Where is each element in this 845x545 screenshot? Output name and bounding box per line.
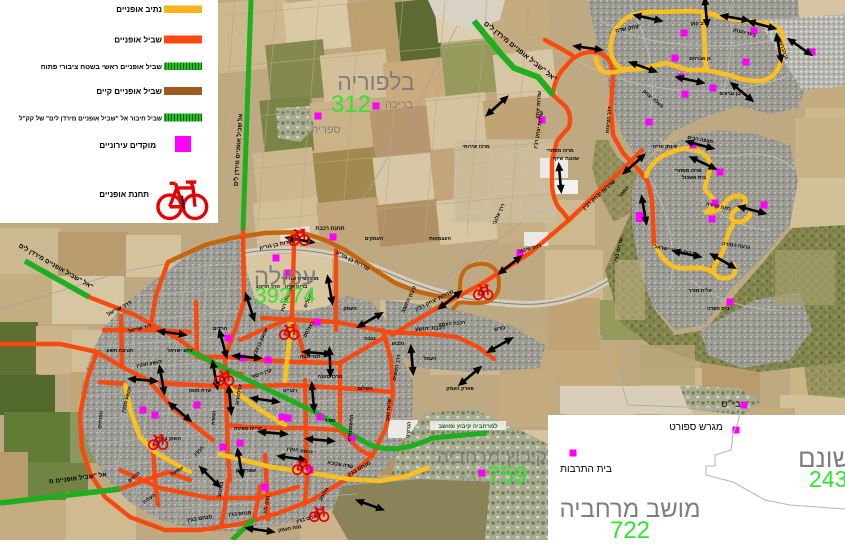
svg-text:שפרינצק: שפרינצק bbox=[236, 468, 256, 474]
svg-text:העמקים: העמקים bbox=[365, 236, 383, 242]
svg-text:קריית ספירה: קריית ספירה bbox=[234, 426, 262, 432]
svg-text:פינתן אריה: פינתן אריה bbox=[653, 144, 678, 150]
svg-text:מרכז מסחרי: מרכז מסחרי bbox=[546, 148, 574, 154]
svg-text:פארק העמק: פארק העמק bbox=[446, 386, 474, 392]
svg-text:עלית מכיר: עלית מכיר bbox=[688, 287, 711, 294]
svg-text:ספריה: ספריה bbox=[311, 124, 340, 136]
svg-text:מרכז מסחרי: מרכז מסחרי bbox=[674, 168, 702, 174]
svg-text:שביל אופניים: שביל אופניים bbox=[114, 36, 162, 45]
svg-text:למרחביה קיבוץ ומושב: למרחביה קיבוץ ומושב bbox=[438, 422, 498, 430]
svg-text:759: 759 bbox=[487, 462, 527, 489]
svg-text:הרב קוק: הרב קוק bbox=[691, 21, 710, 27]
svg-text:זרוע ישראל: זרוע ישראל bbox=[167, 347, 192, 354]
svg-text:שביל חיבור אל "שביל אופניים מי: שביל חיבור אל "שביל אופניים מירדן לים" ש… bbox=[19, 115, 162, 123]
svg-text:שרת משה: שרת משה bbox=[189, 388, 212, 394]
svg-text:בי״ס: בי״ס bbox=[721, 399, 741, 409]
svg-text:39274: 39274 bbox=[254, 283, 315, 308]
svg-text:243: 243 bbox=[809, 466, 845, 492]
svg-text:בית ספרני: בית ספרני bbox=[707, 306, 731, 312]
svg-text:מוקדים עירוניים: מוקדים עירוניים bbox=[99, 141, 156, 150]
svg-text:נתיב אופניים: נתיב אופניים bbox=[116, 5, 162, 14]
svg-text:גן אברהם: גן אברהם bbox=[689, 56, 711, 62]
svg-text:722: 722 bbox=[610, 517, 650, 540]
svg-text:תחנת אופניים: תחנת אופניים bbox=[99, 190, 149, 199]
svg-text:בריכה: בריכה bbox=[459, 474, 482, 484]
svg-text:הנשיא: הנשיא bbox=[210, 410, 217, 425]
svg-text:מרכז סטנה: מרכז סטנה bbox=[318, 374, 343, 380]
svg-text:העמל: העמל bbox=[424, 355, 437, 362]
svg-text:הרדים: הרדים bbox=[213, 326, 227, 332]
svg-text:שביל אופניים ראשי בשטח ציבורי: שביל אופניים ראשי בשטח ציבורי פתוח bbox=[41, 63, 163, 71]
svg-text:312: 312 bbox=[331, 91, 371, 118]
svg-text:בריכה: בריכה bbox=[385, 99, 413, 111]
svg-text:השלום: השלום bbox=[357, 385, 372, 392]
svg-text:שביל אופניים קיים: שביל אופניים קיים bbox=[96, 87, 162, 96]
svg-text:ספיר: ספיר bbox=[324, 418, 336, 424]
svg-text:בן גביעים: בן גביעים bbox=[719, 91, 741, 97]
svg-text:בית התרבות: בית התרבות bbox=[560, 464, 612, 475]
svg-text:גלבוע: גלבוע bbox=[392, 340, 405, 347]
svg-text:העצמאות: העצמאות bbox=[429, 236, 451, 242]
svg-text:תחנת רכבת: תחנת רכבת bbox=[315, 226, 344, 232]
svg-text:חטיבה תשע: חטיבה תשע bbox=[107, 348, 134, 354]
svg-text:הנריאטה: הנריאטה bbox=[300, 354, 320, 360]
svg-text:בית אשכול: בית אשכול bbox=[682, 174, 707, 181]
svg-text:נגבה: נגבה bbox=[364, 336, 375, 342]
svg-text:מגרש ספורט: מגרש ספורט bbox=[669, 422, 723, 433]
svg-text:העמק: העמק bbox=[343, 306, 356, 312]
svg-text:וינגייט: וינגייט bbox=[283, 388, 298, 394]
svg-text:מרכז שירותי: מרכז שירותי bbox=[462, 144, 490, 150]
svg-text:שכונת שיזף: שכונת שיזף bbox=[553, 156, 579, 162]
